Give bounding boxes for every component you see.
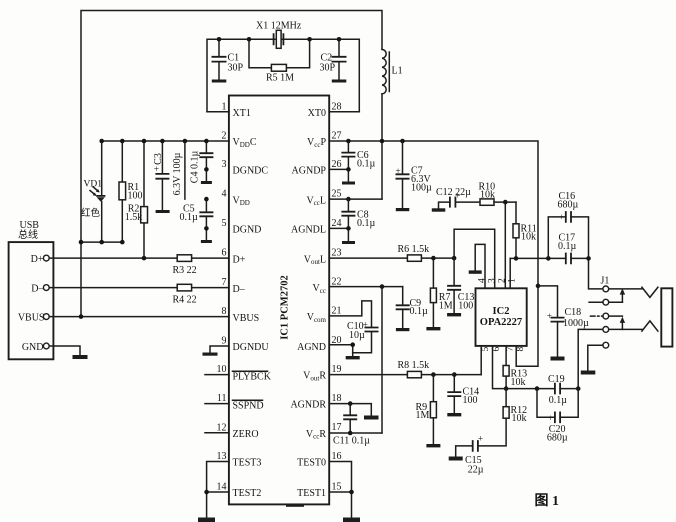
svg-text:R6 1.5k: R6 1.5k xyxy=(398,244,430,255)
svg-text:8: 8 xyxy=(516,347,526,352)
svg-text:28: 28 xyxy=(332,102,342,113)
svg-text:680µ: 680µ xyxy=(547,432,568,443)
svg-text:4: 4 xyxy=(477,278,487,283)
svg-text:IC1 PCM2702: IC1 PCM2702 xyxy=(280,275,291,339)
svg-text:0.1µ: 0.1µ xyxy=(180,212,199,223)
svg-text:C4 0.1µ: C4 0.1µ xyxy=(190,151,201,184)
svg-text:2: 2 xyxy=(498,278,508,283)
svg-text:6.3V 100µ: 6.3V 100µ xyxy=(172,152,183,195)
svg-text:+: + xyxy=(154,165,159,175)
svg-text:GND: GND xyxy=(22,342,44,353)
svg-text:IC2: IC2 xyxy=(493,306,510,317)
svg-text:AGNDR: AGNDR xyxy=(290,400,326,411)
svg-text:3: 3 xyxy=(487,278,497,283)
svg-text:7: 7 xyxy=(222,277,227,288)
svg-text:C12 22µ: C12 22µ xyxy=(436,187,471,198)
svg-text:0.1µ: 0.1µ xyxy=(357,218,376,229)
svg-text:22: 22 xyxy=(332,276,342,287)
svg-text:AGNDL: AGNDL xyxy=(291,225,326,236)
svg-text:X1 12MHz: X1 12MHz xyxy=(256,21,302,32)
svg-text:+: + xyxy=(559,213,564,223)
svg-text:11: 11 xyxy=(217,393,227,404)
svg-text:R8 1.5k: R8 1.5k xyxy=(398,360,430,371)
svg-text:+: + xyxy=(395,167,400,177)
svg-text:DGND: DGND xyxy=(233,225,262,236)
svg-text:18: 18 xyxy=(332,393,342,404)
svg-text:图 1: 图 1 xyxy=(535,493,560,509)
svg-text:5: 5 xyxy=(481,347,491,352)
svg-text:3: 3 xyxy=(222,159,227,170)
svg-text:22µ: 22µ xyxy=(468,464,484,475)
svg-text:680µ: 680µ xyxy=(558,200,579,211)
svg-text:2: 2 xyxy=(222,131,227,142)
svg-text:ZERO: ZERO xyxy=(233,429,259,440)
svg-text:6: 6 xyxy=(222,248,227,259)
svg-text:10k: 10k xyxy=(521,232,536,243)
svg-text:27: 27 xyxy=(332,131,342,142)
svg-text:PLYBCK: PLYBCK xyxy=(233,371,272,382)
svg-text:100: 100 xyxy=(128,191,143,202)
svg-text:R3 22: R3 22 xyxy=(173,265,197,276)
svg-text:SSPND: SSPND xyxy=(233,400,264,411)
svg-text:23: 23 xyxy=(332,248,342,259)
svg-text:10k: 10k xyxy=(511,377,526,388)
svg-text:+: + xyxy=(548,414,553,424)
svg-text:TEST3: TEST3 xyxy=(233,458,262,469)
svg-text:1.5k: 1.5k xyxy=(125,212,143,223)
svg-text:+: + xyxy=(478,435,483,445)
svg-text:10µ: 10µ xyxy=(349,330,365,341)
svg-text:VD1: VD1 xyxy=(84,180,103,190)
svg-text:D–: D– xyxy=(233,284,246,295)
svg-text:12: 12 xyxy=(217,422,227,433)
svg-text:+: + xyxy=(547,312,552,322)
svg-text:1: 1 xyxy=(222,101,227,112)
svg-text:24: 24 xyxy=(332,218,342,229)
svg-text:1000µ: 1000µ xyxy=(563,318,589,329)
svg-text:7: 7 xyxy=(506,347,516,352)
svg-text:0.1µ: 0.1µ xyxy=(357,159,376,170)
svg-text:4: 4 xyxy=(222,189,227,200)
svg-text:100µ: 100µ xyxy=(411,183,432,194)
svg-text:1M: 1M xyxy=(416,410,430,421)
svg-text:J1: J1 xyxy=(601,276,610,287)
svg-text:C18: C18 xyxy=(565,307,582,318)
svg-text:XT1: XT1 xyxy=(233,108,251,119)
svg-text:XT0: XT0 xyxy=(308,108,326,119)
svg-text:C11 0.1µ: C11 0.1µ xyxy=(333,436,370,447)
svg-text:21: 21 xyxy=(332,306,342,317)
svg-text:25: 25 xyxy=(332,189,342,200)
svg-text:C3: C3 xyxy=(153,153,164,165)
svg-text:26: 26 xyxy=(332,159,342,170)
svg-text:10k: 10k xyxy=(480,189,495,200)
svg-text:10k: 10k xyxy=(512,413,527,424)
svg-text:TEST1: TEST1 xyxy=(297,488,326,499)
svg-text:AGNDP: AGNDP xyxy=(292,166,327,177)
svg-text:0.1µ: 0.1µ xyxy=(549,395,568,406)
svg-text:17: 17 xyxy=(332,422,342,433)
svg-text:OPA2227: OPA2227 xyxy=(480,317,522,328)
svg-text:30P: 30P xyxy=(320,63,336,74)
svg-text:1M: 1M xyxy=(439,300,453,311)
svg-text:总线: 总线 xyxy=(18,228,38,241)
svg-text:R4 22: R4 22 xyxy=(173,295,197,306)
svg-text:R5 1M: R5 1M xyxy=(266,73,294,84)
svg-text:D+: D+ xyxy=(233,254,246,265)
svg-text:AGND: AGND xyxy=(297,342,326,353)
svg-text:16: 16 xyxy=(332,451,342,462)
svg-text:100: 100 xyxy=(458,300,473,311)
svg-text:8: 8 xyxy=(222,306,227,317)
svg-text:TEST0: TEST0 xyxy=(297,458,326,469)
svg-text:6: 6 xyxy=(492,347,502,352)
svg-text:100: 100 xyxy=(463,395,478,406)
svg-text:VBUS: VBUS xyxy=(233,313,260,324)
svg-text:13: 13 xyxy=(217,451,227,462)
svg-text:VBUS: VBUS xyxy=(18,313,45,324)
svg-text:15: 15 xyxy=(332,482,342,493)
svg-text:5: 5 xyxy=(222,218,227,229)
svg-text:TEST2: TEST2 xyxy=(233,488,262,499)
svg-text:红色: 红色 xyxy=(81,207,101,219)
svg-text:14: 14 xyxy=(217,482,227,493)
svg-text:19: 19 xyxy=(332,364,342,375)
svg-text:D+: D+ xyxy=(31,254,44,265)
svg-text:D–: D– xyxy=(31,284,44,295)
svg-text:0.1µ: 0.1µ xyxy=(410,306,429,317)
svg-text:DGNDC: DGNDC xyxy=(233,166,269,177)
svg-text:9: 9 xyxy=(222,336,227,347)
svg-text:DGNDU: DGNDU xyxy=(233,342,270,353)
svg-text:C19: C19 xyxy=(548,374,565,385)
svg-text:0.1µ: 0.1µ xyxy=(558,241,577,252)
svg-text:L1: L1 xyxy=(392,66,403,77)
svg-text:1: 1 xyxy=(508,278,518,283)
svg-text:10: 10 xyxy=(217,364,227,375)
svg-text:30P: 30P xyxy=(228,63,244,74)
